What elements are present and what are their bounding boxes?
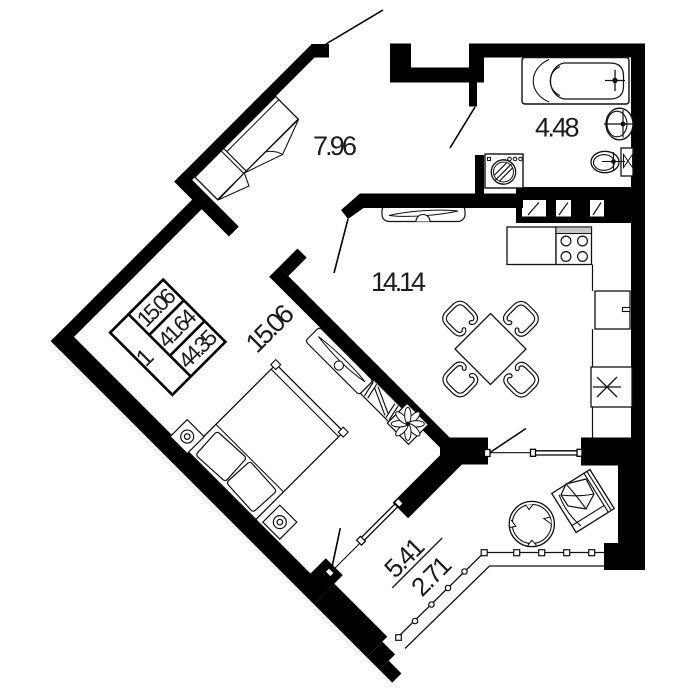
svg-text:7.96: 7.96: [313, 131, 357, 161]
svg-text:4.48: 4.48: [535, 113, 580, 143]
svg-text:14.14: 14.14: [371, 267, 426, 297]
